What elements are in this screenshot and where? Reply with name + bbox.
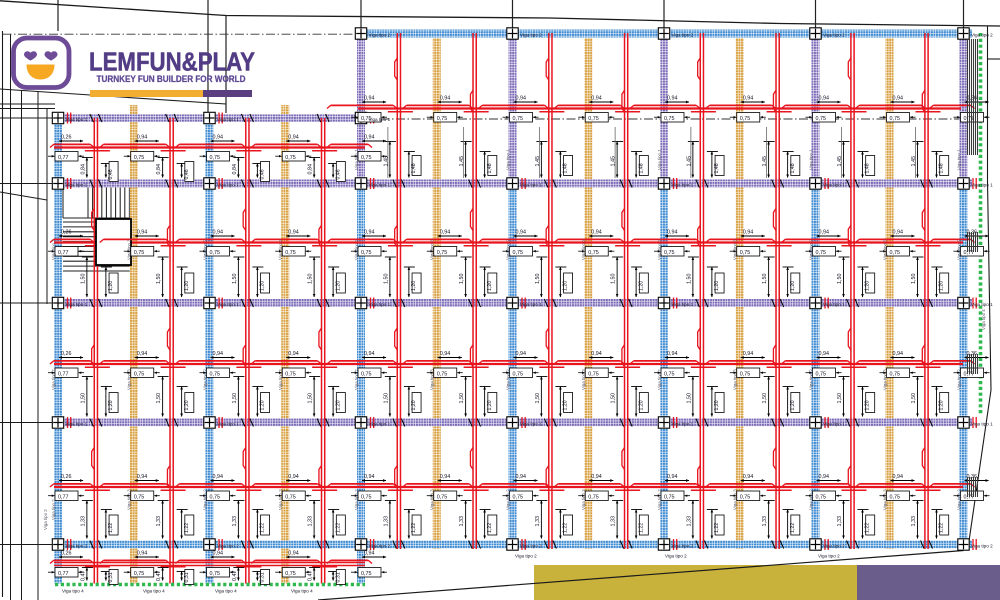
svg-text:Viga tipo 2: Viga tipo 2 bbox=[51, 369, 56, 390]
svg-text:Viga tipo 1: Viga tipo 1 bbox=[217, 117, 239, 122]
svg-text:Viga tipo 2: Viga tipo 2 bbox=[369, 544, 391, 549]
svg-text:Viga tipo 2: Viga tipo 2 bbox=[823, 33, 845, 38]
svg-text:Viga tipo 3: Viga tipo 3 bbox=[882, 239, 887, 260]
svg-text:Viga tipo 4: Viga tipo 4 bbox=[62, 589, 84, 594]
svg-text:Viga tipo 2: Viga tipo 2 bbox=[354, 369, 359, 390]
svg-text:Viga tipo 3: Viga tipo 3 bbox=[127, 239, 132, 260]
svg-text:Viga tipo 2: Viga tipo 2 bbox=[808, 369, 813, 390]
svg-text:Viga tipo 2: Viga tipo 2 bbox=[505, 369, 510, 390]
svg-text:Viga tipo 3: Viga tipo 3 bbox=[278, 239, 283, 260]
svg-text:Viga tipo 1: Viga tipo 1 bbox=[520, 422, 542, 427]
svg-text:Viga tipo 2: Viga tipo 2 bbox=[657, 369, 662, 390]
svg-text:Viga tipo 3: Viga tipo 3 bbox=[127, 489, 132, 510]
svg-text:Viga tipo 2: Viga tipo 2 bbox=[354, 489, 359, 510]
svg-text:Viga tipo 3: Viga tipo 3 bbox=[278, 489, 283, 510]
svg-text:Viga tipo 3: Viga tipo 3 bbox=[430, 369, 435, 390]
svg-text:Viga tipo 1: Viga tipo 1 bbox=[657, 149, 662, 170]
svg-text:Viga tipo 1: Viga tipo 1 bbox=[66, 302, 88, 307]
svg-text:Viga tipo 2: Viga tipo 2 bbox=[818, 554, 840, 559]
svg-text:Viga tipo 1: Viga tipo 1 bbox=[354, 149, 359, 170]
svg-text:Viga tipo 2: Viga tipo 2 bbox=[202, 239, 207, 260]
svg-text:Viga tipo 3: Viga tipo 3 bbox=[430, 239, 435, 260]
svg-text:Viga tipo 3: Viga tipo 3 bbox=[278, 369, 283, 390]
svg-text:Viga tipo 3: Viga tipo 3 bbox=[733, 369, 738, 390]
svg-text:Viga tipo 3: Viga tipo 3 bbox=[882, 489, 887, 510]
svg-text:Viga tipo 1: Viga tipo 1 bbox=[217, 183, 239, 188]
svg-text:Viga tipo 2: Viga tipo 2 bbox=[672, 544, 694, 549]
svg-text:Viga tipo 2: Viga tipo 2 bbox=[657, 239, 662, 260]
svg-text:Viga tipo 1: Viga tipo 1 bbox=[66, 422, 88, 427]
svg-text:Viga tipo 1: Viga tipo 1 bbox=[369, 183, 391, 188]
svg-text:Viga tipo 2: Viga tipo 2 bbox=[217, 544, 239, 549]
svg-text:Viga tipo 2: Viga tipo 2 bbox=[43, 509, 48, 530]
svg-text:Viga tipo 2: Viga tipo 2 bbox=[823, 544, 845, 549]
svg-text:Viga tipo 4: Viga tipo 4 bbox=[143, 589, 165, 594]
svg-text:Viga tipo 3: Viga tipo 3 bbox=[882, 369, 887, 390]
svg-text:Viga tipo 3: Viga tipo 3 bbox=[430, 489, 435, 510]
svg-text:Viga tipo 3: Viga tipo 3 bbox=[733, 239, 738, 260]
svg-text:Viga tipo 3: Viga tipo 3 bbox=[581, 489, 586, 510]
svg-text:Viga tipo 2: Viga tipo 2 bbox=[665, 554, 687, 559]
svg-text:Viga tipo 1: Viga tipo 1 bbox=[971, 302, 993, 307]
svg-text:Viga tipo 1: Viga tipo 1 bbox=[823, 183, 845, 188]
svg-text:Viga tipo 2: Viga tipo 2 bbox=[956, 489, 961, 510]
svg-text:Viga tipo 1: Viga tipo 1 bbox=[520, 183, 542, 188]
svg-text:Viga tipo 1: Viga tipo 1 bbox=[808, 149, 813, 170]
svg-text:Viga tipo 2: Viga tipo 2 bbox=[808, 489, 813, 510]
svg-text:Viga tipo 2: Viga tipo 2 bbox=[971, 33, 993, 38]
svg-text:Viga tipo 2: Viga tipo 2 bbox=[51, 499, 56, 520]
svg-text:Viga tipo 1: Viga tipo 1 bbox=[672, 183, 694, 188]
svg-text:Viga tipo 2: Viga tipo 2 bbox=[505, 239, 510, 260]
svg-text:Viga tipo 2: Viga tipo 2 bbox=[672, 33, 694, 38]
svg-text:Viga tipo 2: Viga tipo 2 bbox=[956, 239, 961, 260]
svg-text:Viga tipo 1: Viga tipo 1 bbox=[66, 117, 88, 122]
svg-text:Viga tipo 1: Viga tipo 1 bbox=[217, 302, 239, 307]
svg-text:Viga tipo 3: Viga tipo 3 bbox=[581, 239, 586, 260]
svg-text:Viga tipo 3: Viga tipo 3 bbox=[733, 489, 738, 510]
svg-text:Viga tipo 2: Viga tipo 2 bbox=[202, 489, 207, 510]
svg-text:Viga tipo 2: Viga tipo 2 bbox=[66, 544, 88, 549]
svg-text:Viga tipo 2: Viga tipo 2 bbox=[808, 239, 813, 260]
svg-text:Viga tipo 3: Viga tipo 3 bbox=[581, 369, 586, 390]
svg-text:Viga tipo 1: Viga tipo 1 bbox=[66, 183, 88, 188]
svg-text:Viga tipo 4: Viga tipo 4 bbox=[981, 309, 986, 330]
svg-text:Viga tipo 1: Viga tipo 1 bbox=[956, 149, 961, 170]
svg-text:Viga tipo 2: Viga tipo 2 bbox=[520, 544, 542, 549]
svg-text:Viga tipo 1: Viga tipo 1 bbox=[505, 149, 510, 170]
svg-text:LEMFUN&PLAY: LEMFUN&PLAY bbox=[89, 49, 255, 77]
svg-text:Viga tipo 2: Viga tipo 2 bbox=[369, 33, 391, 38]
svg-text:Viga tipo 2: Viga tipo 2 bbox=[515, 554, 537, 559]
svg-text:Viga tipo 2: Viga tipo 2 bbox=[51, 239, 56, 260]
svg-text:Viga tipo 1: Viga tipo 1 bbox=[823, 302, 845, 307]
svg-text:Viga tipo 2: Viga tipo 2 bbox=[202, 369, 207, 390]
svg-text:Viga tipo 1: Viga tipo 1 bbox=[369, 302, 391, 307]
svg-text:Viga tipo 1: Viga tipo 1 bbox=[672, 302, 694, 307]
svg-text:Viga tipo 4: Viga tipo 4 bbox=[291, 589, 313, 594]
svg-text:Viga tipo 2: Viga tipo 2 bbox=[520, 33, 542, 38]
svg-text:Viga tipo 1: Viga tipo 1 bbox=[971, 183, 993, 188]
svg-text:Viga tipo 1: Viga tipo 1 bbox=[217, 422, 239, 427]
svg-text:Viga tipo 4: Viga tipo 4 bbox=[215, 589, 237, 594]
svg-text:Viga tipo 2: Viga tipo 2 bbox=[657, 489, 662, 510]
svg-text:Viga tipo 1: Viga tipo 1 bbox=[369, 422, 391, 427]
svg-text:Viga tipo 2: Viga tipo 2 bbox=[956, 369, 961, 390]
svg-text:Viga tipo 2: Viga tipo 2 bbox=[505, 489, 510, 510]
svg-text:Viga tipo 1: Viga tipo 1 bbox=[971, 422, 993, 427]
svg-text:Viga tipo 1: Viga tipo 1 bbox=[823, 422, 845, 427]
svg-text:Viga tipo 2: Viga tipo 2 bbox=[971, 544, 993, 549]
svg-text:Viga tipo 1: Viga tipo 1 bbox=[369, 117, 391, 122]
svg-text:Viga tipo 3: Viga tipo 3 bbox=[127, 369, 132, 390]
svg-text:Viga tipo 1: Viga tipo 1 bbox=[520, 302, 542, 307]
svg-text:TURNKEY FUN BUILDER FOR WORLD: TURNKEY FUN BUILDER FOR WORLD bbox=[97, 74, 246, 84]
svg-text:Viga tipo 2: Viga tipo 2 bbox=[354, 239, 359, 260]
svg-text:Viga tipo 1: Viga tipo 1 bbox=[672, 422, 694, 427]
